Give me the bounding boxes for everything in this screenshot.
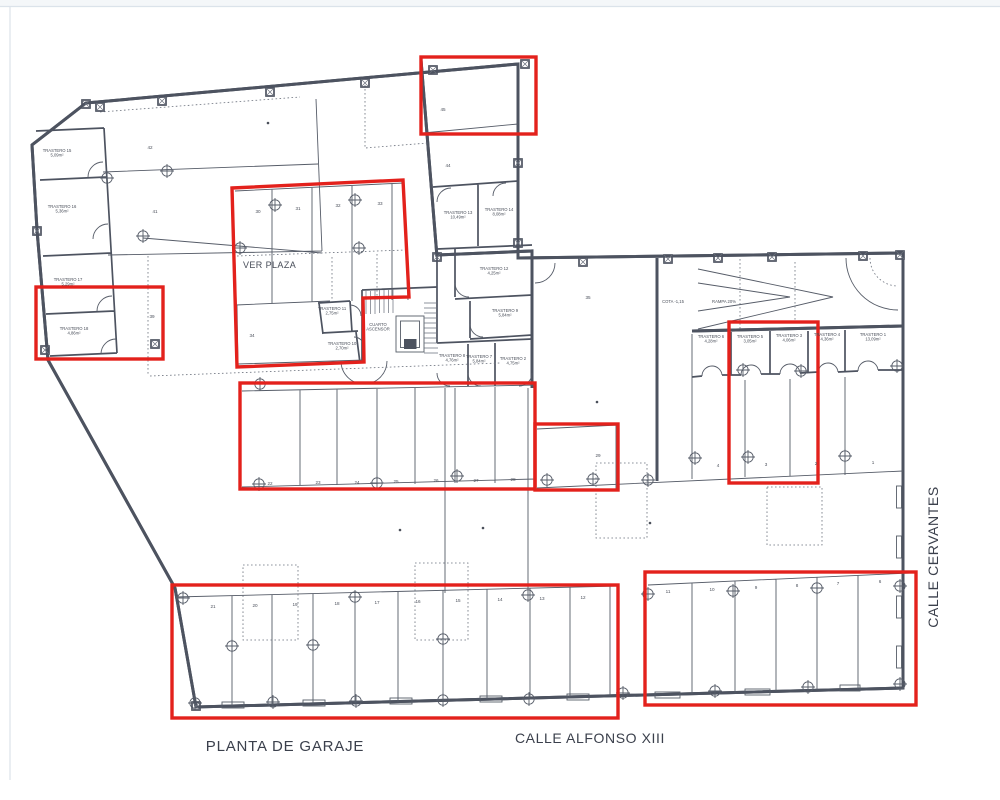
street-label-bottom: CALLE ALFONSO XIII — [515, 730, 665, 746]
garage-floor-plan-page: PLANTA DE GARAJE CALLE ALFONSO XIII CALL… — [0, 0, 1000, 800]
highlight-box-middle-row — [240, 383, 535, 489]
column-marker-circle — [352, 241, 366, 255]
parking-space-number: 41 — [152, 209, 158, 214]
floor-plan-svg: PLANTA DE GARAJE CALLE ALFONSO XIII CALL… — [0, 0, 1000, 800]
parking-space-number: 22 — [267, 481, 273, 486]
cota-label: COTA -1,15 — [662, 299, 684, 304]
parking-space-number: 35 — [585, 295, 591, 300]
parking-space-number: 2 — [815, 461, 818, 466]
column-marker-circle — [838, 449, 852, 463]
storeroom-label: TRASTERO 75,84m² — [466, 354, 493, 364]
storeroom-label: TRASTERO 175,29m² — [54, 277, 83, 287]
column-marker-circle — [306, 638, 320, 652]
parking-space-number: 14 — [497, 597, 503, 602]
column-marker-circle — [540, 473, 554, 487]
parking-space-number: 8 — [796, 583, 799, 588]
storeroom-label: TRASTERO 34,06m² — [776, 333, 803, 343]
stair-treads-upper — [366, 289, 393, 314]
parking-space-number: 32 — [335, 203, 341, 208]
storeroom-label: TRASTERO 84,76m² — [439, 353, 466, 363]
parking-space-number: 1 — [872, 460, 875, 465]
storeroom-label: TRASTERO 124,25m² — [480, 266, 509, 276]
column-marker-circle — [726, 584, 740, 598]
storeroom-label: TRASTERO 53,05m² — [737, 334, 764, 344]
column-marker-circle — [266, 695, 280, 709]
highlight-box-bottom-right-row — [645, 572, 916, 705]
column-marker-square — [579, 258, 587, 266]
parking-space-number: 34 — [249, 333, 255, 338]
column-marker-circle — [436, 693, 450, 707]
storeroom-label: TRASTERO 1310,49m² — [444, 210, 473, 220]
column-marker-circle — [741, 450, 755, 464]
parking-space-number: 21 — [210, 604, 216, 609]
storeroom-label: TRASTERO 148,08m² — [485, 207, 514, 217]
column-marker-circle — [268, 198, 282, 212]
ver-plaza-label: VER PLAZA — [243, 260, 296, 270]
street-label-right: CALLE CERVANTES — [925, 486, 941, 628]
parking-space-number: 31 — [295, 206, 301, 211]
column-marker-circle — [136, 229, 150, 243]
column-marker-square — [521, 60, 529, 68]
parking-space-number: 26 — [433, 478, 439, 483]
column-marker-circle — [893, 579, 907, 593]
column-marker-circle — [436, 632, 450, 646]
column-marker-circle — [349, 694, 363, 708]
storeroom-label: TRASTERO 64,28m² — [698, 334, 725, 344]
storeroom-label: TRASTERO 24,75m² — [500, 356, 527, 366]
parking-space-number: 42 — [147, 145, 153, 150]
rampa-label: RAMPA 20% — [712, 299, 736, 304]
parking-space-number: 23 — [315, 480, 321, 485]
scan-page-frame — [0, 0, 1000, 780]
parking-dividers — [103, 99, 910, 708]
reference-dot — [267, 122, 270, 125]
column-marker-square — [158, 97, 166, 105]
partition-walls — [36, 128, 903, 386]
column-marker-square — [151, 340, 159, 348]
column-marker-circle — [586, 472, 600, 486]
elevator-car — [404, 339, 417, 349]
column-marker-circle — [225, 639, 239, 653]
column-marker-circle — [641, 587, 655, 601]
column-marker-circle — [810, 581, 824, 595]
parking-space-number: 3 — [765, 462, 768, 467]
machine-room-label: CUARTOASCENSOR — [366, 322, 390, 332]
parking-space-number: 29 — [595, 453, 601, 458]
parking-space-number: 18 — [334, 601, 340, 606]
parking-space-number: 30 — [255, 209, 261, 214]
column-marker-circle — [688, 451, 702, 465]
parking-space-number: 45 — [440, 107, 446, 112]
column-marker-circle — [160, 164, 174, 178]
column-marker-square — [96, 103, 104, 111]
parking-space-number: 11 — [666, 589, 671, 594]
column-marker-circle — [641, 473, 655, 487]
parking-space-number: 9 — [755, 585, 758, 590]
stair-treads-lower — [424, 303, 438, 353]
highlight-boxes — [36, 57, 916, 718]
parking-space-number: 6 — [879, 579, 882, 584]
highlight-box-left — [36, 287, 163, 359]
storeroom-labels: TRASTERO 155,09m²TRASTERO 165,36m²TRASTE… — [43, 148, 887, 366]
storeroom-label: TRASTERO 102,70m² — [328, 341, 357, 351]
column-marker-circle — [100, 171, 114, 185]
highlight-box-right-storerooms — [729, 322, 818, 483]
storeroom-label: TRASTERO 184,86m² — [60, 326, 89, 336]
dashed-guides — [100, 85, 898, 640]
parking-space-number: 19 — [292, 602, 298, 607]
parking-space-number: 10 — [709, 587, 715, 592]
parking-space-number: 4 — [717, 463, 720, 468]
parking-space-number: 16 — [415, 599, 421, 604]
storeroom-label: TRASTERO 112,75m² — [318, 306, 347, 316]
column-marker-circle — [522, 692, 536, 706]
parking-space-number: 33 — [377, 201, 383, 206]
column-marker-circle — [521, 588, 535, 602]
reference-dot — [596, 401, 599, 404]
parking-space-number: 20 — [252, 603, 258, 608]
storeroom-label: TRASTERO 95,84m² — [492, 308, 519, 318]
parking-space-number: 44 — [445, 163, 451, 168]
reference-dot — [399, 529, 402, 532]
column-marker-circle — [708, 684, 722, 698]
parking-space-number: 28 — [510, 477, 516, 482]
parking-space-number: 39 — [149, 314, 155, 319]
parking-space-number: 17 — [374, 600, 380, 605]
parking-space-number: 7 — [837, 581, 840, 586]
storeroom-label: TRASTERO 113,09m² — [860, 332, 887, 342]
storeroom-label: TRASTERO 165,36m² — [48, 204, 77, 214]
plan-title: PLANTA DE GARAJE — [206, 738, 364, 755]
reference-dot — [649, 522, 652, 525]
parking-space-number: 24 — [354, 480, 360, 485]
parking-space-number: 13 — [539, 596, 545, 601]
storeroom-label: TRASTERO 155,09m² — [43, 148, 72, 158]
parking-space-number: 25 — [393, 479, 399, 484]
parking-space-number: 27 — [473, 478, 479, 483]
column-marker-circle — [348, 193, 362, 207]
parking-space-number: 12 — [580, 595, 586, 600]
column-marker-square — [266, 88, 274, 96]
parking-space-number: 15 — [455, 598, 461, 603]
reference-dot — [482, 527, 485, 530]
